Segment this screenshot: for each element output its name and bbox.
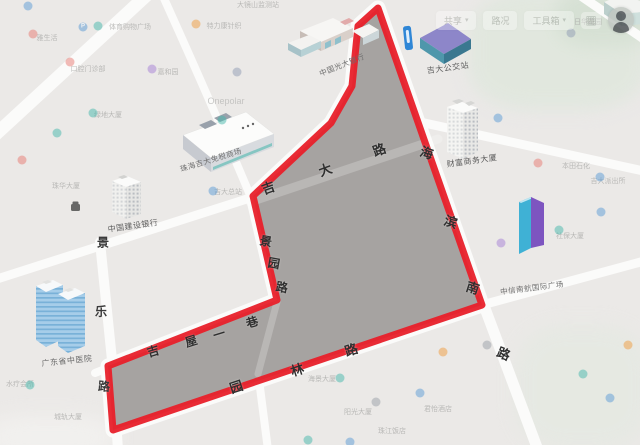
poi-marker-icon[interactable] [209,187,218,196]
street-name-char: 乐 [95,303,107,320]
poi-marker-icon[interactable] [579,370,588,379]
street-name-char: 大 [316,158,335,180]
street-name-char: 景 [259,232,274,251]
share-button[interactable]: 共享 ▾ [436,11,477,30]
poi-label[interactable]: 中国建设银行 [107,217,159,235]
street-name-char: 海 [418,141,436,163]
map-canvas[interactable]: 吉大路海滨南路景园路吉屋一巷景乐路园林路珠海吉大免税商场中国光大银行吉大公交站财… [0,0,640,445]
faint-poi-label: 海景大厦 [308,374,336,384]
chevron-down-icon: ▾ [465,16,469,24]
street-name-char: 景 [97,234,109,251]
map-toolbar: 共享 ▾ 路况 工具箱 ▾ ▦ [436,7,634,33]
street-name-char: 一 [211,324,227,344]
street-name-char: 园 [227,375,245,397]
faint-poi-label: 大镜山监测站 [237,0,279,10]
street-name-char: 路 [370,138,389,160]
poi-marker-icon[interactable] [597,208,606,217]
faint-poi-label: 体育购物广场 [109,22,151,32]
poi-marker-icon[interactable] [218,116,227,125]
poi-marker-icon[interactable] [336,374,345,383]
poi-marker-icon[interactable] [606,394,615,403]
faint-poi-label: 城轨大厦 [54,412,82,422]
poi-label[interactable]: 中国光大银行 [318,51,367,79]
poi-marker-icon[interactable] [29,30,38,39]
poi-marker-icon[interactable] [94,22,103,31]
street-name-char: 路 [494,342,513,364]
poi-marker-icon[interactable] [624,341,633,350]
street-name-char: 路 [275,278,290,297]
poi-marker-icon[interactable] [346,438,355,445]
faint-poi-label: 珠江饭店 [378,426,406,436]
street-name-char: 路 [342,338,360,360]
street-name-char: 林 [288,358,306,380]
traffic-button-label: 路况 [491,14,509,27]
faint-poi-label: Onepolar [207,96,244,106]
street-name-char: 南 [464,276,482,298]
faint-poi-label: 珠华大厦 [52,181,80,191]
faint-poi-label: 嘉和园 [158,67,179,77]
poi-marker-icon[interactable] [18,156,27,165]
faint-poi-label: 阳光大厦 [344,407,372,417]
poi-marker-icon[interactable] [372,398,381,407]
poi-marker-icon[interactable] [555,226,564,235]
faint-poi-label: 雅生活 [37,33,58,43]
street-name-char: 吉 [259,176,278,198]
poi-marker-icon[interactable] [192,20,201,29]
poi-marker-icon[interactable] [66,58,75,67]
poi-marker-icon[interactable] [148,65,157,74]
poi-marker-icon[interactable] [494,114,503,123]
poi-marker-icon[interactable] [416,389,425,398]
street-name-char: 屋 [183,331,199,351]
poi-marker-icon[interactable] [439,348,448,357]
street-name-char: 滨 [442,210,460,232]
faint-poi-label: 本田石化 [562,161,590,171]
poi-marker-icon[interactable] [534,159,543,168]
faint-poi-label: 绿地大厦 [94,110,122,120]
poi-marker-icon[interactable] [483,341,492,350]
poi-label[interactable]: 广东省中医院 [41,353,93,369]
poi-marker-icon[interactable] [233,68,242,77]
poi-marker-icon[interactable] [26,381,35,390]
toolbox-button-label: 工具箱 [532,14,559,27]
street-name-char: 巷 [244,312,260,332]
poi-marker-icon[interactable] [596,173,605,182]
street-name-char: 路 [97,377,110,395]
faint-poi-label: 吉大总站 [214,187,242,197]
chevron-down-icon: ▾ [562,16,566,24]
poi-marker-icon[interactable] [24,2,33,11]
map-labels: 吉大路海滨南路景园路吉屋一巷景乐路园林路珠海吉大免税商场中国光大银行吉大公交站财… [0,0,640,445]
share-button-label: 共享 [444,14,462,27]
poi-label[interactable]: 吉大公交站 [426,60,470,77]
poi-marker-icon[interactable] [304,436,313,445]
user-avatar[interactable] [608,7,634,33]
faint-poi-label: 口腔门诊部 [71,64,106,74]
avatar-torso-icon [613,22,629,33]
toolbar-buttons: 共享 ▾ 路况 工具箱 ▾ ▦ [436,11,601,30]
faint-poi-label: 特力康针织 [207,21,242,31]
avatar-head-icon [616,11,626,21]
toolbox-button[interactable]: 工具箱 ▾ [524,11,574,30]
poi-label[interactable]: 财富商务大厦 [446,152,498,170]
poi-marker-icon[interactable] [497,239,506,248]
poi-label[interactable]: 中信南航国际广场 [500,279,565,298]
poi-marker-icon[interactable]: P [79,23,88,32]
poi-marker-icon[interactable] [53,129,62,138]
street-name-char: 园 [267,254,282,273]
poi-label[interactable]: 珠海吉大免税商场 [179,145,243,174]
poi-marker-icon[interactable] [89,109,98,118]
apps-grid-icon[interactable]: ▦ [581,12,601,29]
faint-poi-label: 君怡酒店 [424,404,452,414]
traffic-button[interactable]: 路况 [483,11,517,30]
street-name-char: 吉 [145,341,161,361]
